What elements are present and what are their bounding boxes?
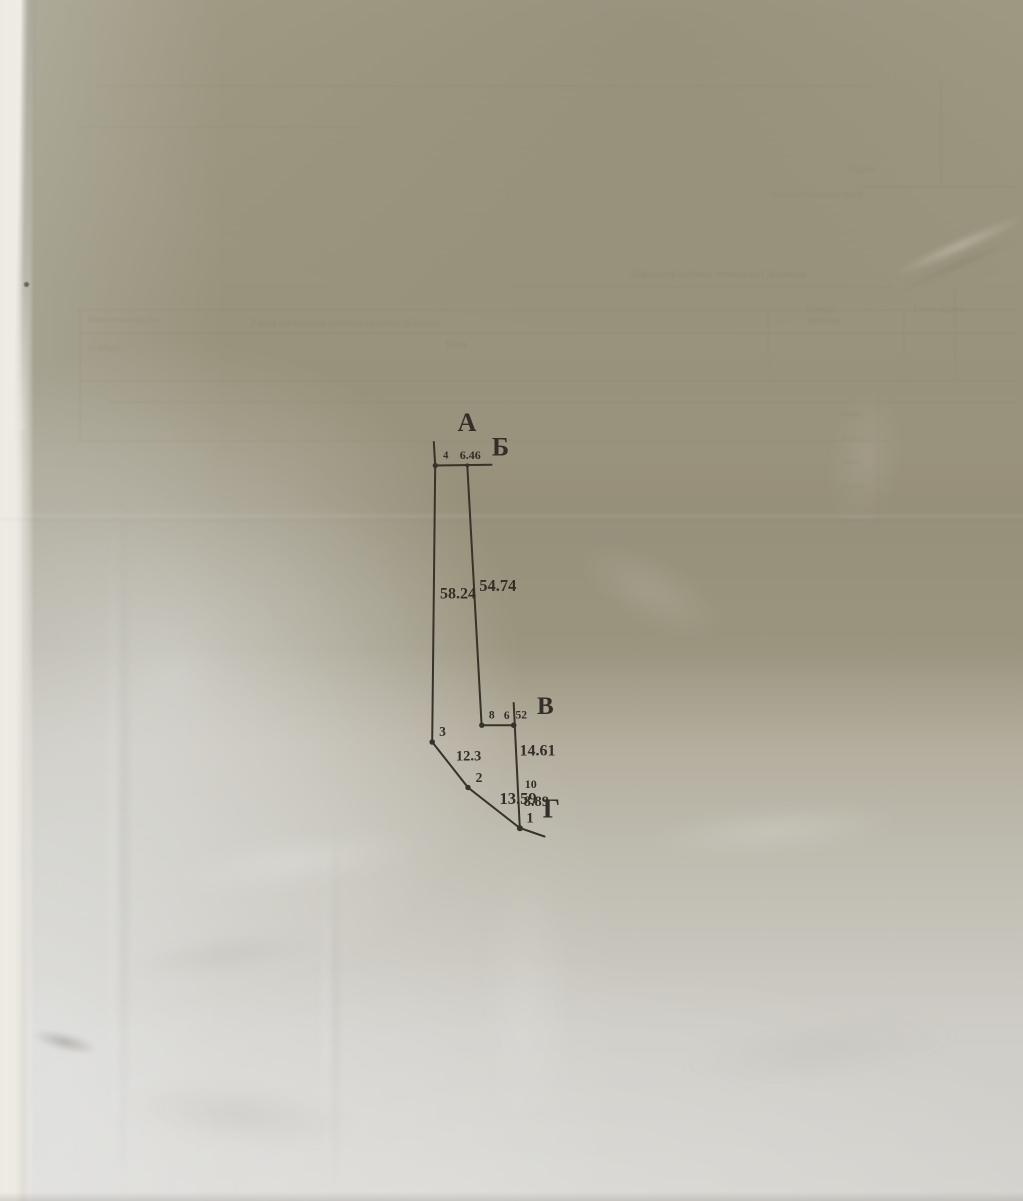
svg-text:4: 4 (443, 451, 449, 462)
svg-text:3: 3 (439, 724, 446, 739)
svg-text:6.46: 6.46 (460, 448, 481, 462)
svg-text:1: 1 (526, 811, 533, 827)
svg-text:8: 8 (489, 710, 495, 722)
svg-text:Б: Б (492, 433, 509, 462)
svg-text:14.61: 14.61 (520, 743, 556, 760)
svg-text:2: 2 (476, 770, 483, 785)
svg-text:52: 52 (516, 710, 528, 722)
svg-text:12.3: 12.3 (456, 749, 481, 765)
svg-text:54.74: 54.74 (479, 576, 516, 595)
svg-text:Г: Г (543, 794, 560, 824)
svg-text:В: В (537, 693, 554, 720)
svg-text:6: 6 (504, 710, 510, 722)
svg-text:А: А (458, 408, 477, 437)
svg-text:58.24: 58.24 (440, 586, 476, 603)
